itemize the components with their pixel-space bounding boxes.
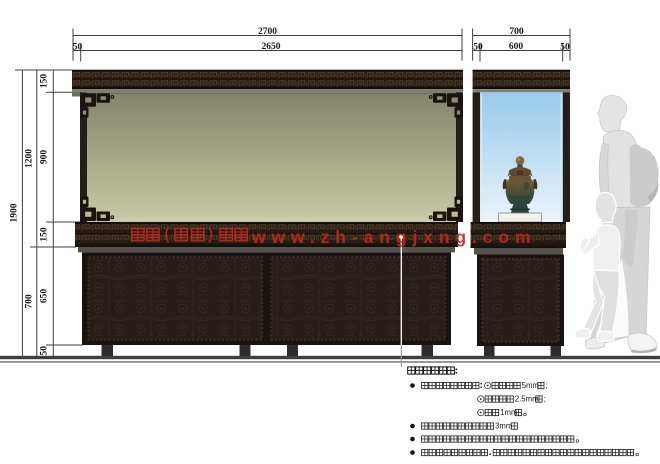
- svg-text:;: ;: [546, 381, 548, 390]
- svg-text:50: 50: [73, 43, 83, 53]
- svg-text:2650: 2650: [262, 42, 281, 52]
- svg-text:600: 600: [509, 42, 524, 52]
- svg-text:50: 50: [560, 43, 570, 53]
- svg-text:5mm: 5mm: [522, 381, 539, 390]
- svg-text:2.5mm: 2.5mm: [515, 395, 539, 404]
- svg-text:650: 650: [40, 289, 50, 304]
- svg-text:;: ;: [544, 395, 546, 404]
- svg-text:50: 50: [40, 346, 50, 356]
- svg-text:700: 700: [509, 27, 524, 37]
- svg-text:900: 900: [40, 150, 50, 165]
- svg-text:150: 150: [40, 227, 50, 242]
- svg-text:1900: 1900: [10, 203, 20, 222]
- svg-text:www.zh-angjxng.com: www.zh-angjxng.com: [251, 227, 536, 247]
- svg-text:3mm: 3mm: [495, 422, 512, 431]
- svg-text:50: 50: [473, 43, 483, 53]
- svg-text:2700: 2700: [258, 27, 277, 37]
- svg-text:700: 700: [25, 294, 35, 309]
- svg-text:1200: 1200: [25, 149, 35, 168]
- svg-text:150: 150: [40, 74, 50, 89]
